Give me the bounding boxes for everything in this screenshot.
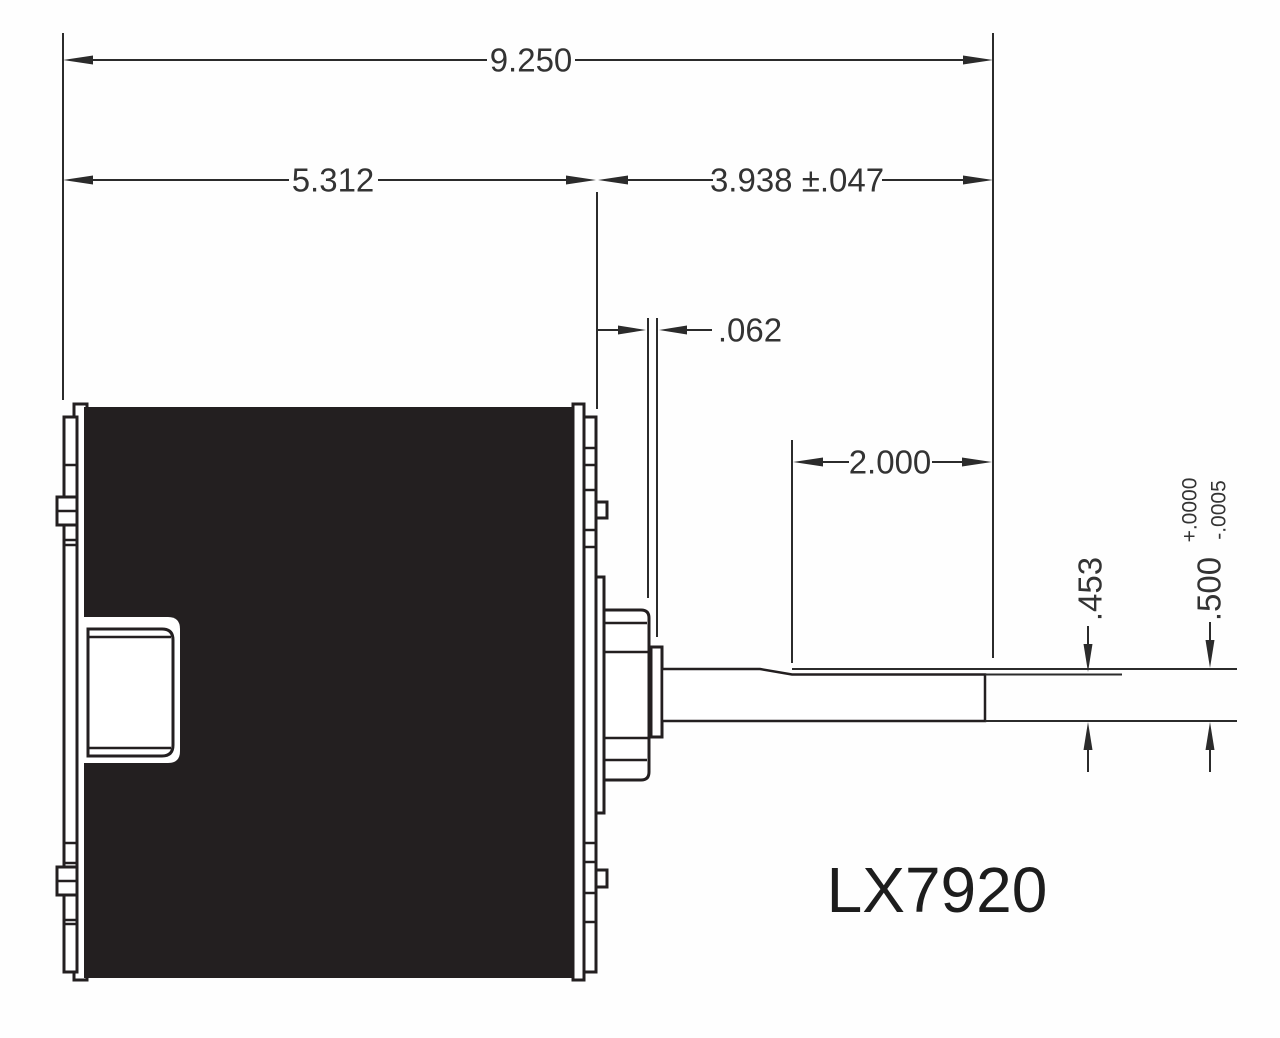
motor-shaft: [662, 669, 985, 721]
arrowhead-up-icon: [1206, 722, 1215, 750]
arrowhead-up-icon: [1084, 722, 1093, 750]
dimension-flat-length: 2.000: [793, 444, 992, 481]
tolerance-minus: -.0005: [1208, 480, 1231, 540]
dim-shaft-diameter: .500: [1191, 557, 1228, 621]
dim-body-length: 5.312: [292, 162, 375, 199]
right-endcap-outer-strip: [584, 417, 596, 972]
arrowhead-left-icon: [598, 176, 628, 185]
right-mounting-stud-bottom: [596, 870, 607, 887]
dim-flat-height: .453: [1072, 557, 1109, 621]
shaft-slinger-washer: [651, 647, 662, 737]
dimension-overall-length: 9.250: [63, 42, 993, 79]
arrowhead-down-icon: [1206, 640, 1215, 668]
right-mounting-stud-top: [596, 502, 607, 518]
dim-flat-length: 2.000: [849, 444, 932, 481]
engineering-drawing-canvas: 9.250 5.312 3.938 ±.047 .062 2.000: [0, 0, 1280, 1038]
arrowhead-right-icon: [566, 176, 596, 185]
motor-dimension-drawing: 9.250 5.312 3.938 ±.047 .062 2.000: [0, 0, 1280, 1038]
dim-slinger-thickness: .062: [718, 312, 782, 349]
arrowhead-left-icon: [793, 458, 823, 467]
dimension-flat-height: .453: [1072, 557, 1109, 772]
tolerance-plus: +.0000: [1179, 478, 1202, 543]
dim-shaft-extension: 3.938 ±.047: [710, 162, 884, 199]
arrowhead-left-icon: [63, 56, 93, 65]
dimension-slinger-thickness: .062: [598, 312, 782, 349]
arrowhead-right-icon: [963, 176, 993, 185]
arrowhead-right-icon: [618, 326, 646, 335]
arrowhead-down-icon: [1084, 644, 1093, 672]
arrowhead-left-icon: [63, 176, 93, 185]
terminal-cover: [88, 629, 173, 756]
bearing-hub: [604, 610, 649, 780]
dim-overall-length: 9.250: [490, 42, 573, 79]
part-number-label: LX7920: [827, 854, 1048, 926]
right-endcap-inner-strip: [573, 404, 584, 980]
dimension-body-length: 5.312: [63, 162, 596, 199]
arrowhead-right-icon: [962, 458, 992, 467]
dimension-shaft-diameter: .500 +.0000 -.0005: [1179, 478, 1231, 772]
dimension-shaft-extension: 3.938 ±.047: [598, 162, 993, 199]
arrowhead-left-icon: [659, 326, 687, 335]
arrowhead-right-icon: [963, 56, 993, 65]
